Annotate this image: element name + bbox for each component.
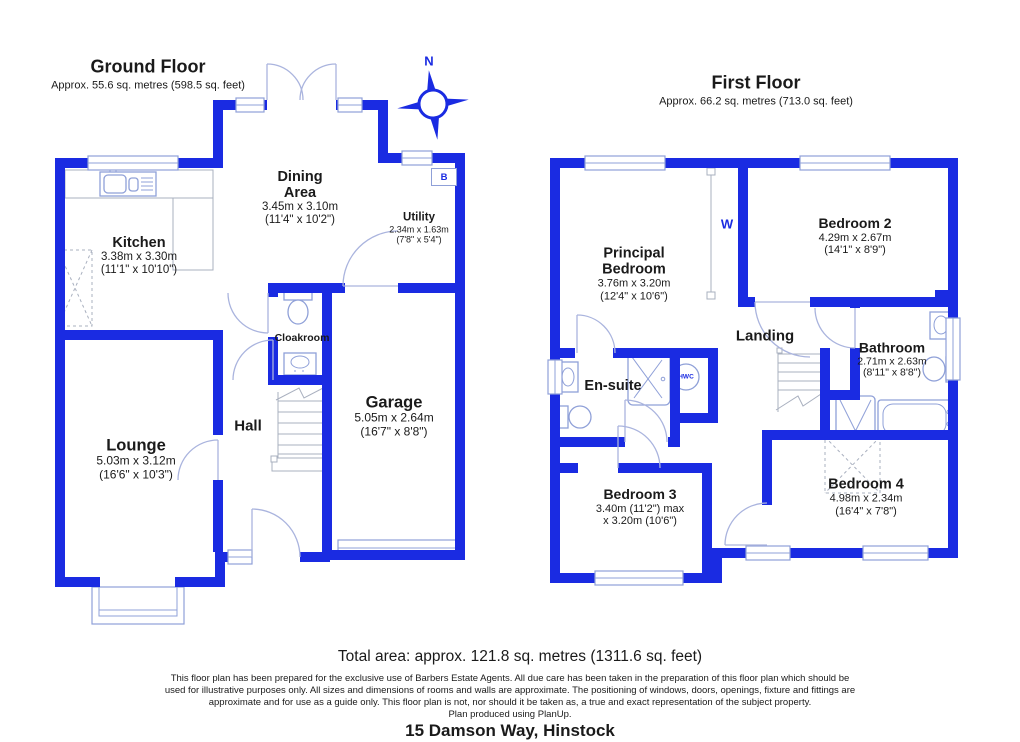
- hwc-marker: HWC: [678, 373, 694, 380]
- room-label-bedroom3: Bedroom 3 3.40m (11'2") max x 3.20m (10'…: [596, 487, 684, 527]
- first-floor-area: Approx. 66.2 sq. metres (713.0 sq. feet): [659, 95, 853, 107]
- total-area-text: Total area: approx. 121.8 sq. metres (13…: [338, 648, 702, 666]
- compass-icon: [393, 66, 473, 144]
- stairs-icon: [776, 348, 824, 412]
- ground-floor-plan: [55, 64, 465, 624]
- window: [88, 156, 178, 170]
- door-lounge: [178, 440, 218, 480]
- door-bathroom: [815, 308, 855, 348]
- floorplan-page: Ground Floor Approx. 55.6 sq. metres (59…: [0, 0, 1020, 742]
- bay-window: [92, 587, 184, 624]
- window: [800, 156, 890, 170]
- room-label-garage: Garage 5.05m x 2.64m (16'7" x 8'8"): [354, 393, 433, 438]
- window: [228, 550, 252, 564]
- window: [585, 156, 665, 170]
- compass-north-label: N: [424, 55, 433, 70]
- page-title: Ground Floor: [51, 56, 245, 76]
- first-floor-title: First Floor Approx. 66.2 sq. metres (713…: [659, 72, 853, 107]
- window: [402, 151, 432, 165]
- room-label-landing: Landing: [736, 329, 794, 346]
- cloakroom-basin-icon: [284, 353, 316, 375]
- room-label-utility: Utility 2.34m x 1.63m (7'8" x 5'4"): [389, 211, 449, 244]
- wardrobe-marker: W: [721, 218, 733, 233]
- window: [946, 318, 960, 380]
- ground-floor-area: Approx. 55.6 sq. metres (598.5 sq. feet): [51, 79, 245, 91]
- room-label-cloakroom: Cloakroom: [275, 333, 330, 345]
- room-label-bedroom4: Bedroom 4 4.98m x 2.34m (16'4" x 7'8"): [828, 477, 904, 518]
- ensuite-toilet-icon: [558, 406, 591, 428]
- door-cloakroom: [233, 340, 273, 380]
- room-label-bathroom: Bathroom 2.71m x 2.63m (8'11" x 8'8"): [857, 340, 926, 379]
- disclaimer-body: This floor plan has been prepared for th…: [165, 673, 855, 708]
- window: [595, 571, 683, 585]
- wardrobe-front: [707, 168, 715, 299]
- cloakroom-toilet-icon: [284, 291, 312, 324]
- room-label-bedroom2: Bedroom 2 4.29m x 2.67m (14'1" x 8'9"): [818, 216, 891, 256]
- disclaimer-produced: Plan produced using PlanUp.: [448, 709, 571, 720]
- door-ensuite: [625, 400, 667, 442]
- front-door: [252, 509, 300, 557]
- door-bedroom4: [725, 503, 767, 545]
- room-label-ensuite: En-suite: [584, 378, 641, 394]
- window: [236, 98, 264, 112]
- room-label-hall: Hall: [234, 419, 262, 436]
- window: [863, 546, 928, 560]
- room-label-kitchen: Kitchen 3.38m x 3.30m (11'1" x 10'10"): [101, 235, 177, 277]
- room-label-principal-bedroom: Principal Bedroom 3.76m x 3.20m (12'4" x…: [598, 245, 671, 302]
- disclaimer-text: This floor plan has been prepared for th…: [164, 673, 856, 721]
- kitchen-sink-icon: [100, 169, 156, 196]
- boiler-marker: B: [431, 168, 457, 186]
- room-label-lounge: Lounge 5.03m x 3.12m (16'6" x 10'3"): [96, 436, 175, 481]
- room-label-dining-area: Dining Area 3.45m x 3.10m (11'4" x 10'2"…: [262, 169, 338, 227]
- window: [548, 360, 562, 394]
- door-principal-bedroom: [577, 315, 615, 353]
- property-address: 15 Damson Way, Hinstock: [405, 721, 615, 741]
- door-dining-hall: [228, 293, 268, 333]
- stairs-icon: [271, 386, 329, 471]
- window: [338, 98, 362, 112]
- french-doors: [267, 64, 336, 100]
- ground-floor-title: Ground Floor Approx. 55.6 sq. metres (59…: [51, 56, 245, 91]
- window: [746, 546, 790, 560]
